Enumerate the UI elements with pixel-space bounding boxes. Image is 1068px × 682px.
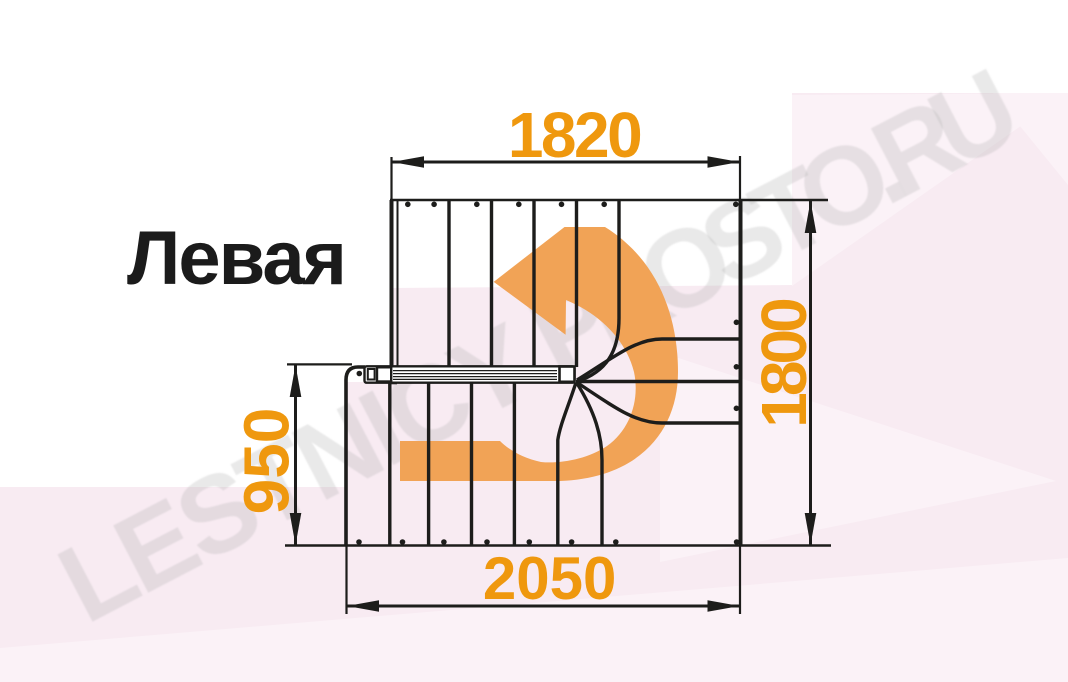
svg-text:1800: 1800 (748, 300, 820, 428)
svg-text:950: 950 (231, 408, 303, 515)
svg-text:Левая: Левая (127, 216, 345, 301)
svg-text:2050: 2050 (483, 545, 616, 612)
svg-text:1820: 1820 (508, 99, 640, 171)
